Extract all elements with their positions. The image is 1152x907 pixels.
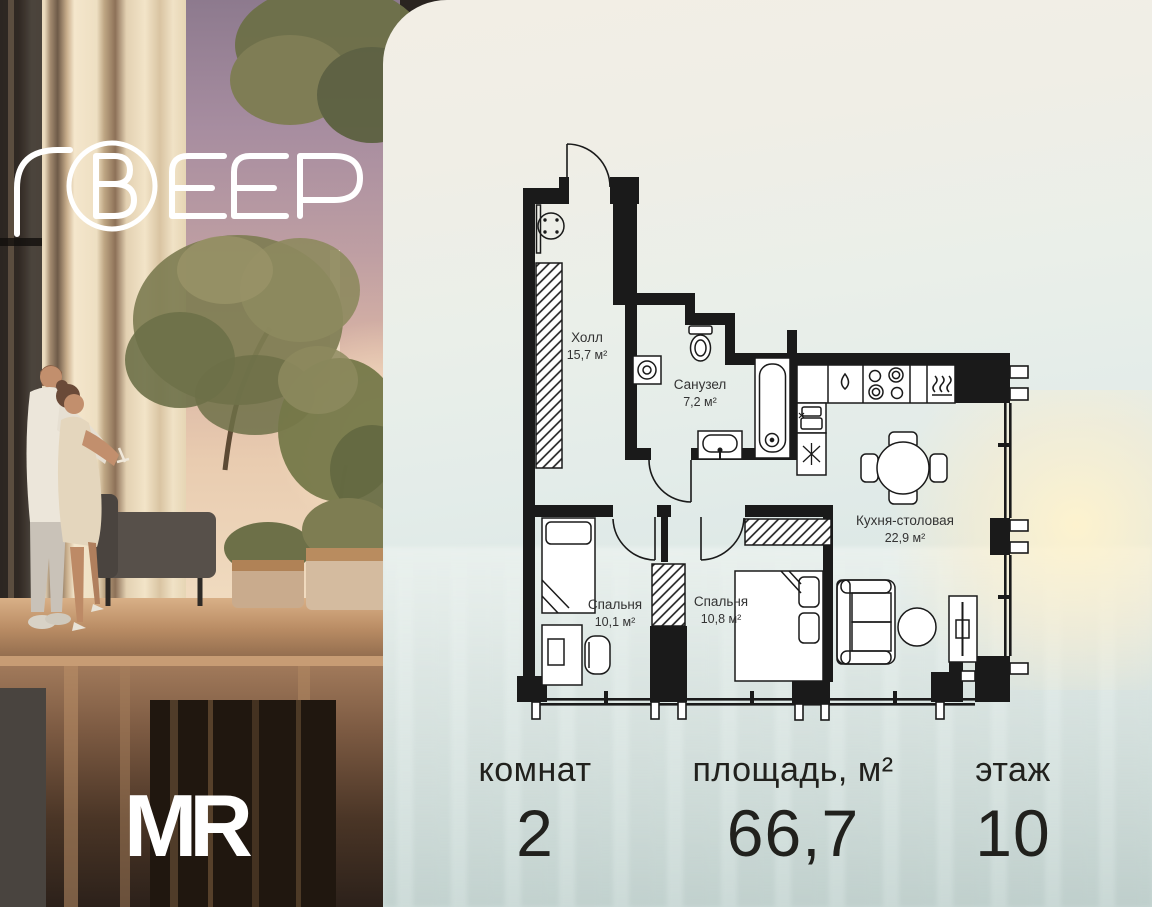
room-hall-area: 15,7 м² bbox=[567, 348, 608, 362]
floor-value: 10 bbox=[911, 799, 1115, 868]
bedroom2-door bbox=[701, 517, 744, 560]
hall-wardrobe bbox=[536, 263, 562, 468]
room-bedroom2-name: Спальня bbox=[694, 594, 748, 609]
bedroom1-wardrobe bbox=[652, 564, 685, 626]
logo-letter-e1 bbox=[172, 156, 224, 216]
bedroom2-furniture bbox=[735, 519, 831, 681]
dining-table bbox=[861, 432, 947, 504]
entrance-door bbox=[567, 144, 610, 188]
bathroom-door bbox=[649, 460, 691, 502]
room-bedroom1-area: 10,1 м² bbox=[595, 615, 636, 629]
summary-floor: этаж 10 bbox=[911, 752, 1115, 869]
hall-furniture bbox=[536, 205, 564, 468]
mr-developer-logo: MR bbox=[124, 782, 245, 870]
logo-corner-mark bbox=[17, 150, 70, 234]
room-hall-name: Холл bbox=[571, 330, 603, 345]
area-value: 66,7 bbox=[645, 799, 941, 868]
room-bedroom1-name: Спальня bbox=[588, 597, 642, 612]
listing-card: MR bbox=[0, 0, 1152, 907]
logo-letter-e2 bbox=[234, 156, 286, 216]
bathroom-furniture bbox=[633, 326, 790, 459]
bedroom2-wardrobe bbox=[745, 519, 831, 545]
room-bath-area: 7,2 м² bbox=[683, 395, 717, 409]
logo-letter-v bbox=[96, 156, 134, 216]
rooms-label: комнат bbox=[435, 752, 635, 789]
area-label: площадь, м² bbox=[645, 752, 941, 789]
floorplan-panel: Холл 15,7 м² Санузел 7,2 м² Кухня-столов… bbox=[383, 0, 1152, 907]
ottoman bbox=[898, 608, 936, 646]
room-kitchen-name: Кухня-столовая bbox=[856, 513, 954, 528]
floor-plan: Холл 15,7 м² Санузел 7,2 м² Кухня-столов… bbox=[503, 130, 1073, 740]
floor-label: этаж bbox=[911, 752, 1115, 789]
toilet bbox=[689, 326, 712, 334]
sofa bbox=[837, 580, 895, 664]
rooms-value: 2 bbox=[435, 799, 635, 868]
desk-and-chair bbox=[542, 625, 610, 685]
room-bath-name: Санузел bbox=[674, 377, 727, 392]
bedroom1-door bbox=[613, 517, 655, 560]
summary-area: площадь, м² 66,7 bbox=[645, 752, 941, 869]
room-kitchen-area: 22,9 м² bbox=[885, 531, 926, 545]
logo-letter-r bbox=[300, 156, 360, 216]
ceiling-lamp bbox=[538, 213, 564, 239]
veer-project-logo bbox=[12, 134, 376, 238]
room-bedroom2-area: 10,8 м² bbox=[701, 612, 742, 626]
summary-rooms: комнат 2 bbox=[435, 752, 635, 869]
tv-stand bbox=[949, 596, 977, 662]
double-bed bbox=[735, 571, 823, 681]
